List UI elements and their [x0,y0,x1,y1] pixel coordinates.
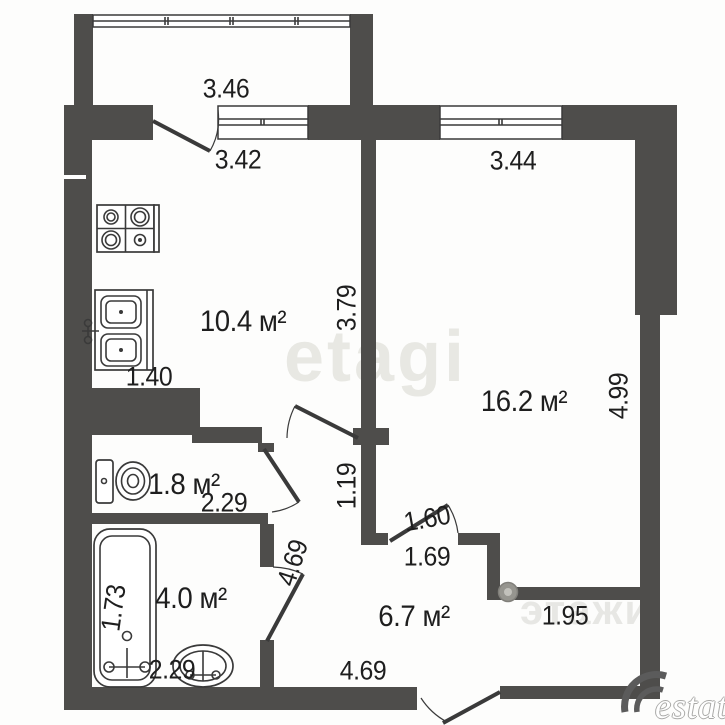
wall-kitchen-block [92,388,200,435]
restate-watermark: estate [655,685,725,725]
living-area-label: 16.2 м² [481,385,567,419]
floor-plan: etagi этажи [0,0,725,725]
dim-kitchen-depth: 3.79 [332,285,363,332]
dim-sink-width: 1.40 [126,362,173,393]
wall-bath-right-lower [260,640,274,687]
wall-right-outer-top [635,105,677,315]
dim-living-door-wall: 1.69 [404,542,451,573]
wall-living-bottom [500,587,658,600]
toilet-icon [96,460,150,503]
dim-balcony-width: 3.46 [203,74,250,105]
balcony-glazing [93,15,350,27]
living-window [440,106,562,139]
wall-balcony-left [74,14,93,109]
wall-bottom-left [64,687,417,710]
wall-mid-vertical [361,140,376,545]
wall-step-horizontal [458,533,500,545]
stove-icon [97,205,159,252]
dim-bath-width: 2.29 [149,655,196,686]
dim-hall-passage: 1.19 [332,463,363,510]
wall-mid-stub [361,533,388,545]
dim-hall-width: 4.69 [340,656,387,687]
entrance-door [421,692,500,723]
wall-left-outer [64,105,92,710]
etagi-logo-dot-icon [499,583,518,602]
wall-right-outer-bottom [640,313,660,699]
kitchen-area-label: 10.4 м² [200,305,286,339]
balcony-door [153,110,219,151]
dim-wc-width: 2.29 [201,488,248,519]
wall-top-a [92,105,153,140]
wall-balcony-right [350,14,373,109]
kitchen-window [218,106,308,139]
dim-bath-depth: 1.73 [95,583,132,633]
wall-bath-right-upper [260,524,274,567]
wall-wc-top [192,427,262,443]
wc-door [264,449,299,512]
bathroom-area-label: 4.0 м² [155,582,226,616]
kitchen-sink-icon [82,290,153,370]
hallway-area-label: 6.7 м² [378,600,449,634]
dim-entry-niche: 1.95 [542,601,589,632]
dim-living-depth: 4.99 [604,373,635,420]
dim-balcony-door-width: 3.42 [215,145,262,176]
wall-top-c [562,105,637,140]
wall-top-b [308,105,440,140]
kitchen-door [287,406,358,438]
dim-living-window-width: 3.44 [490,146,537,177]
wall-tick [64,175,86,179]
